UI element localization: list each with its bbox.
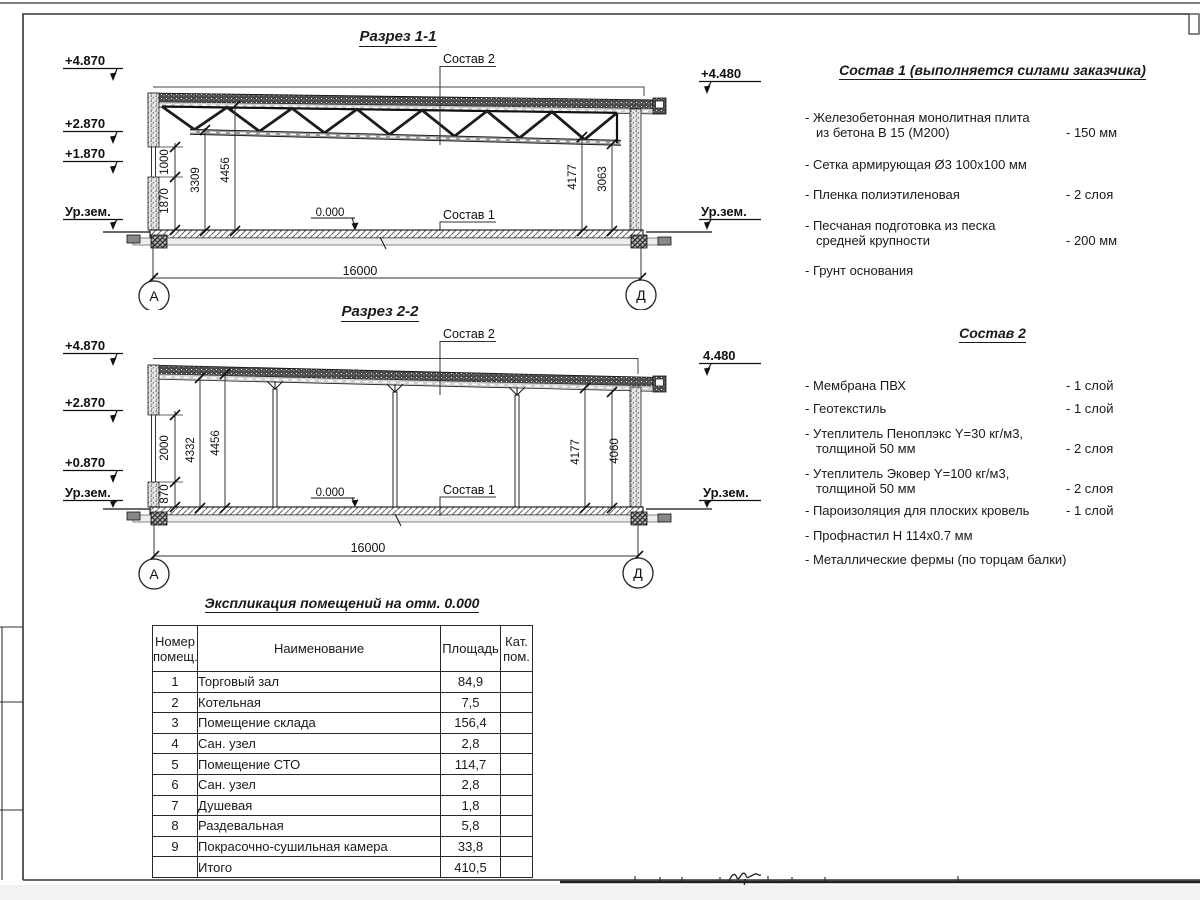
dim-2000: 2000	[159, 435, 171, 461]
svg-text:Ур.зем.: Ур.зем.	[65, 204, 111, 219]
svg-text:0.000: 0.000	[316, 487, 345, 499]
table-row: 6Сан. узел2,8	[153, 774, 533, 795]
foundation-right	[631, 235, 647, 248]
table-row: 9Покрасочно-сушильная камера33,8	[153, 836, 533, 857]
svg-text:+4.480: +4.480	[701, 66, 741, 81]
dim-1000: 1000	[159, 149, 171, 175]
dim-4456: 4456	[210, 430, 222, 456]
sostav2-title: Состав 2	[800, 325, 1185, 343]
table-row: 7Душевая1,8	[153, 795, 533, 816]
right-wall	[630, 109, 641, 230]
zero-level-mark: 0.000	[311, 207, 359, 231]
svg-text:+4.870: +4.870	[65, 53, 105, 68]
table-header-row: Номер помещ. Наименование Площадь Кат. п…	[153, 626, 533, 672]
svg-text:Состав 1: Состав 1	[443, 483, 495, 497]
col-header-category: Кат. пом.	[501, 626, 533, 672]
foundation-right	[631, 512, 647, 525]
fascia-detail	[656, 379, 664, 386]
svg-text:4.480: 4.480	[703, 348, 736, 363]
table-row: 3Помещение склада156,4	[153, 713, 533, 734]
dim-4332: 4332	[185, 437, 197, 463]
col-header-number: Номер помещ.	[153, 626, 198, 672]
elevation-marks-right: +4.480 Ур.зем.	[699, 66, 761, 230]
sostav1-item-value: - 2 слоя	[1066, 187, 1176, 202]
room-schedule-table: Номер помещ. Наименование Площадь Кат. п…	[152, 625, 533, 878]
sostav1-item: - Пленка полиэтиленовая	[805, 187, 1106, 202]
left-wall-lower	[148, 177, 159, 230]
foundation-left	[151, 512, 167, 525]
sostav2-item-value: - 1 слой	[1066, 401, 1176, 416]
svg-text:Ур.зем.: Ур.зем.	[701, 204, 747, 219]
elevation-marks-left: +4.870 +2.870 +1.870 Ур.зем.	[63, 53, 123, 230]
sostav2-item: - Утеплитель Эковер Y=100 кг/м3, толщино…	[805, 466, 1106, 496]
sostav2-item-value: - 2 слоя	[1066, 481, 1176, 496]
table-row-total: Итого410,5	[153, 857, 533, 878]
svg-text:Состав 2: Состав 2	[443, 327, 495, 341]
foundation-step-right	[658, 514, 671, 522]
sostav2-item-value: - 1 слой	[1066, 503, 1176, 518]
schedule-title: Экспликация помещений на отм. 0.000	[152, 595, 532, 613]
truss	[162, 107, 621, 146]
dim-3309: 3309	[190, 167, 202, 193]
svg-text:0.000: 0.000	[316, 207, 345, 219]
corner-box	[1189, 14, 1199, 34]
right-wall	[630, 387, 641, 507]
elevation-marks-right: 4.480 Ур.зем.	[699, 348, 761, 508]
elevation-marks-left: +4.870 +2.870 +0.870 Ур.зем.	[63, 338, 123, 508]
left-wall-upper	[148, 365, 159, 415]
foundation-step-left	[127, 512, 140, 520]
dim-4060: 4060	[609, 438, 621, 464]
sostav1-title: Состав 1 (выполняется силами заказчика)	[800, 62, 1185, 80]
svg-text:Ур.зем.: Ур.зем.	[65, 485, 111, 500]
sostav2-item: - Пароизоляция для плоских кровель	[805, 503, 1106, 518]
overall-dim: 16000	[351, 541, 386, 555]
sostav1-item-value: - 150 мм	[1066, 125, 1176, 140]
sostav1-item: - Железобетонная монолитная плита из бет…	[805, 110, 1106, 140]
dim-870: 870	[159, 484, 171, 503]
svg-text:Состав 1: Состав 1	[443, 208, 495, 222]
section2-drawing: 870 2000 4332 4456 4177 4060 0.000 Соста…	[55, 300, 775, 600]
axis-bubbles: А Д	[139, 558, 653, 589]
sostav2-item: - Мембрана ПВХ	[805, 378, 1106, 393]
sostav1-item: - Грунт основания	[805, 263, 1106, 278]
sostav1-callout: Состав 1	[440, 208, 496, 231]
axis-a: А	[149, 566, 159, 582]
sostav1-item: - Песчаная подготовка из песка средней к…	[805, 218, 1106, 248]
fascia-detail	[656, 101, 664, 108]
drawing-sheet: Разрез 1-1	[0, 0, 1200, 900]
dim-4177: 4177	[570, 439, 582, 465]
svg-text:+4.870: +4.870	[65, 338, 105, 353]
col-header-area: Площадь	[441, 626, 501, 672]
dim-4456: 4456	[220, 157, 232, 183]
col-header-name: Наименование	[198, 626, 441, 672]
left-wall-upper	[148, 93, 159, 147]
svg-text:Состав 2: Состав 2	[443, 52, 495, 66]
zero-level-mark: 0.000	[311, 487, 359, 507]
svg-text:Ур.зем.: Ур.зем.	[703, 485, 749, 500]
table-row: 1Торговый зал84,9	[153, 672, 533, 693]
sostav2-item: - Геотекстиль	[805, 401, 1106, 416]
table-row: 2Котельная7,5	[153, 692, 533, 713]
sostav1-item: - Сетка армирующая Ø3 100х100 мм	[805, 157, 1106, 172]
window-glazing	[152, 147, 156, 177]
foundation-step-right	[658, 237, 671, 245]
margin-stamp-boxes	[0, 627, 23, 880]
svg-text:+1.870: +1.870	[65, 146, 105, 161]
dim-1870: 1870	[159, 188, 171, 214]
left-wall-lower	[148, 482, 159, 507]
svg-text:+2.870: +2.870	[65, 116, 105, 131]
table-row: 8Раздевальная5,8	[153, 816, 533, 837]
dim-4177: 4177	[567, 164, 579, 190]
table-row: 5Помещение СТО114,7	[153, 754, 533, 775]
scan-bottom-strip	[0, 885, 1200, 900]
floor	[103, 507, 712, 526]
sostav1-item-value: - 200 мм	[1066, 233, 1176, 248]
svg-text:+2.870: +2.870	[65, 395, 105, 410]
sostav2-item-value: - 1 слой	[1066, 378, 1176, 393]
foundation-step-left	[127, 235, 140, 243]
sostav2-item: - Металлические фермы (по торцам балки)	[805, 552, 1106, 567]
floor	[103, 230, 712, 249]
dim-3063: 3063	[597, 166, 609, 192]
svg-text:+0.870: +0.870	[65, 455, 105, 470]
section1-drawing: 1870 1000 3309 4456 4177 3063 0.000 Сост…	[55, 25, 775, 310]
overall-dim: 16000	[343, 264, 378, 278]
sostav2-item-value: - 2 слоя	[1066, 441, 1176, 456]
sostav2-item: - Утеплитель Пеноплэкс Y=30 кг/м3, толщи…	[805, 426, 1106, 456]
window-glazing	[152, 415, 156, 482]
table-row: 4Сан. узел2,8	[153, 733, 533, 754]
axis-d: Д	[633, 565, 643, 581]
sostav2-item: - Профнастил Н 114х0.7 мм	[805, 528, 1106, 543]
